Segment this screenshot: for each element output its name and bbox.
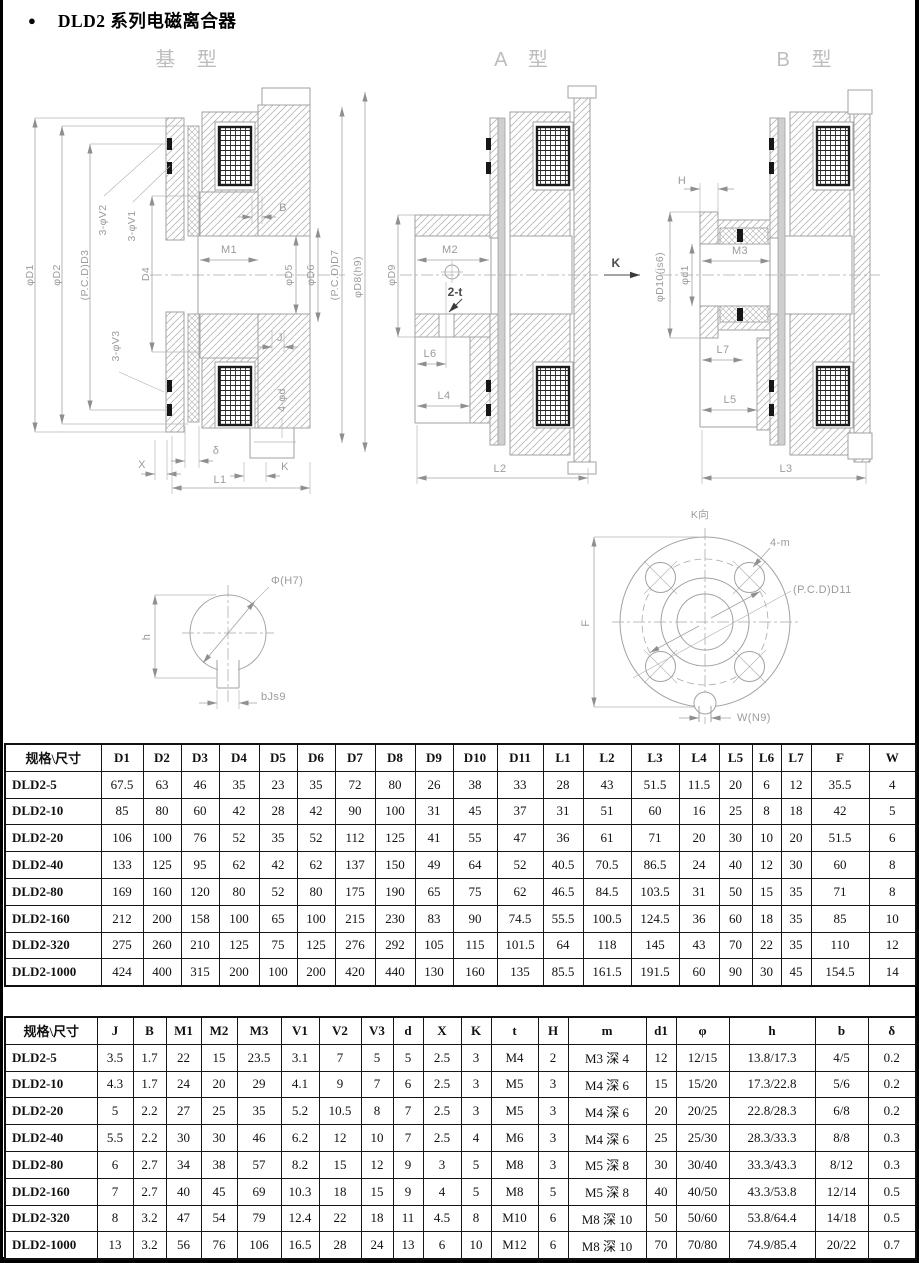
dim-label-bjs9: bJs9 — [261, 691, 286, 703]
spec-cell: DLD2-40 — [5, 852, 101, 879]
value-cell: 12 — [752, 852, 781, 879]
value-cell: 17.3/22.8 — [729, 1071, 815, 1098]
spec-cell: DLD2-80 — [5, 1151, 97, 1178]
value-cell: 2.7 — [133, 1151, 166, 1178]
value-cell: 100 — [375, 798, 415, 825]
value-cell: 47 — [166, 1205, 201, 1232]
value-cell: 3 — [423, 1151, 461, 1178]
value-cell: 35 — [781, 878, 811, 905]
value-cell: 1.7 — [133, 1044, 166, 1071]
table-row: DLD2-104.31.72420294.19762.53M53M4 深 615… — [5, 1071, 916, 1098]
value-cell: 125 — [143, 852, 181, 879]
value-cell: 62 — [497, 878, 543, 905]
value-cell: 106 — [237, 1232, 281, 1259]
spec-cell: DLD2-80 — [5, 878, 101, 905]
dim-label-3phiV2: 3-φV2 — [97, 205, 109, 236]
value-cell: 315 — [181, 959, 219, 986]
value-cell: 8 — [869, 878, 916, 905]
table-row: DLD2-53.51.7221523.53.17552.53M42M3 深 41… — [5, 1044, 916, 1071]
value-cell: 35 — [781, 905, 811, 932]
value-cell: 30 — [719, 825, 752, 852]
value-cell: 80 — [143, 798, 181, 825]
value-cell: 76 — [201, 1232, 237, 1259]
value-cell: 47 — [497, 825, 543, 852]
column-header: h — [729, 1017, 815, 1044]
value-cell: 105 — [415, 932, 453, 959]
value-cell: 50/60 — [676, 1205, 729, 1232]
value-cell: 5.2 — [281, 1098, 319, 1125]
value-cell: 70 — [719, 932, 752, 959]
value-cell: 103.5 — [631, 878, 679, 905]
coil-winding — [219, 127, 251, 185]
value-cell: 40 — [166, 1178, 201, 1205]
value-cell: 9 — [319, 1071, 361, 1098]
column-header: M2 — [201, 1017, 237, 1044]
value-cell: 60 — [679, 959, 719, 986]
value-cell: 60 — [811, 852, 869, 879]
coil-winding — [817, 127, 849, 185]
value-cell: 7 — [97, 1178, 133, 1205]
dimension-table-1: 规格\尺寸D1D2D3D4D5D6D7D8D9D10D11L1L2L3L4L5L… — [4, 743, 917, 987]
value-cell: 20 — [201, 1071, 237, 1098]
value-cell: 7 — [393, 1125, 423, 1152]
value-cell: 60 — [631, 798, 679, 825]
value-cell: 292 — [375, 932, 415, 959]
value-cell: 420 — [335, 959, 375, 986]
value-cell: 6 — [752, 771, 781, 798]
value-cell: 100.5 — [583, 905, 631, 932]
dim-label-phi-d5: φD5 — [283, 264, 295, 285]
value-cell: 112 — [335, 825, 375, 852]
value-cell: 54 — [201, 1205, 237, 1232]
value-cell: 61 — [583, 825, 631, 852]
value-cell: 75 — [453, 878, 497, 905]
value-cell: 4/5 — [815, 1044, 868, 1071]
value-cell: M12 — [491, 1232, 538, 1259]
value-cell: 4.1 — [281, 1071, 319, 1098]
value-cell: 0.5 — [868, 1178, 916, 1205]
drawing-title-b: B 型 — [777, 48, 840, 71]
dim-label-x: X — [138, 459, 146, 471]
value-cell: 125 — [297, 932, 335, 959]
value-cell: 50 — [719, 878, 752, 905]
value-cell: 5 — [393, 1044, 423, 1071]
value-cell: 215 — [335, 905, 375, 932]
column-header: M3 — [237, 1017, 281, 1044]
value-cell: 160 — [143, 878, 181, 905]
value-cell: M6 — [491, 1125, 538, 1152]
value-cell: 18 — [319, 1178, 361, 1205]
column-header: d — [393, 1017, 423, 1044]
value-cell: M5 深 8 — [568, 1151, 646, 1178]
value-cell: 31 — [679, 878, 719, 905]
value-cell: M8 深 10 — [568, 1205, 646, 1232]
column-header: V1 — [281, 1017, 319, 1044]
value-cell: 22 — [319, 1205, 361, 1232]
column-header: t — [491, 1017, 538, 1044]
keyway-detail-view: Φ(H7) h bJs9 — [141, 575, 303, 709]
column-header: V3 — [361, 1017, 393, 1044]
value-cell: 169 — [101, 878, 143, 905]
value-cell: 12 — [869, 932, 916, 959]
value-cell: 3.2 — [133, 1205, 166, 1232]
column-header: M1 — [166, 1017, 201, 1044]
dim-label-pcd-d7: (P.C.D)D7 — [329, 250, 341, 301]
value-cell: 8 — [97, 1205, 133, 1232]
dim-label-l3: L3 — [779, 463, 792, 475]
column-header: δ — [868, 1017, 916, 1044]
column-header: X — [423, 1017, 461, 1044]
table-row: DLD2-405.52.23030466.2121072.54M63M4 深 6… — [5, 1125, 916, 1152]
value-cell: 154.5 — [811, 959, 869, 986]
value-cell: 24 — [679, 852, 719, 879]
column-header: D11 — [497, 744, 543, 771]
column-header: V2 — [319, 1017, 361, 1044]
column-header: D6 — [297, 744, 335, 771]
value-cell: 115 — [453, 932, 497, 959]
value-cell: 62 — [297, 852, 335, 879]
dim-label-l7: L7 — [716, 344, 729, 356]
value-cell: 90 — [719, 959, 752, 986]
value-cell: 70/80 — [676, 1232, 729, 1259]
spec-cell: DLD2-320 — [5, 932, 101, 959]
value-cell: 12/14 — [815, 1178, 868, 1205]
value-cell: 31 — [415, 798, 453, 825]
value-cell: 30/40 — [676, 1151, 729, 1178]
value-cell: 12 — [361, 1151, 393, 1178]
coil-winding — [817, 367, 849, 425]
value-cell: 20/25 — [676, 1098, 729, 1125]
value-cell: 6 — [869, 825, 916, 852]
dim-label-phi-d1-small: φd1 — [679, 265, 691, 285]
value-cell: 30 — [646, 1151, 676, 1178]
value-cell: 100 — [143, 825, 181, 852]
column-header: L2 — [583, 744, 631, 771]
header-row: 规格\尺寸JBM1M2M3V1V2V3dXKtHmd1φhbδ — [5, 1017, 916, 1044]
value-cell: 137 — [335, 852, 375, 879]
value-cell: 14/18 — [815, 1205, 868, 1232]
value-cell: 36 — [543, 825, 583, 852]
value-cell: 124.5 — [631, 905, 679, 932]
value-cell: 26 — [415, 771, 453, 798]
value-cell: 52 — [219, 825, 259, 852]
value-cell: 71 — [811, 878, 869, 905]
column-header: 规格\尺寸 — [5, 744, 101, 771]
coil-winding — [219, 367, 251, 425]
value-cell: 43 — [679, 932, 719, 959]
value-cell: 424 — [101, 959, 143, 986]
value-cell: 10 — [752, 825, 781, 852]
drawing-title-base: 基 型 — [155, 48, 225, 71]
value-cell: 30 — [201, 1125, 237, 1152]
coil-winding — [537, 367, 569, 425]
value-cell: M8 — [491, 1178, 538, 1205]
value-cell: 20 — [646, 1098, 676, 1125]
table-row: DLD2-16021220015810065100215230839074.55… — [5, 905, 916, 932]
value-cell: 6 — [538, 1205, 568, 1232]
coil-winding — [537, 127, 569, 185]
value-cell: 86.5 — [631, 852, 679, 879]
value-cell: 38 — [453, 771, 497, 798]
value-cell: 2 — [538, 1044, 568, 1071]
table-row: DLD2-32083.247547912.42218114.58M106M8 深… — [5, 1205, 916, 1232]
value-cell: 10.3 — [281, 1178, 319, 1205]
value-cell: 42 — [219, 798, 259, 825]
value-cell: 5.5 — [97, 1125, 133, 1152]
value-cell: 35.5 — [811, 771, 869, 798]
value-cell: 37 — [497, 798, 543, 825]
value-cell: 2.5 — [423, 1125, 461, 1152]
value-cell: 42 — [811, 798, 869, 825]
value-cell: 158 — [181, 905, 219, 932]
bullet-icon: ● — [28, 13, 36, 29]
value-cell: 8 — [869, 852, 916, 879]
value-cell: 51.5 — [631, 771, 679, 798]
value-cell: 8.2 — [281, 1151, 319, 1178]
value-cell: 125 — [219, 932, 259, 959]
value-cell: 15 — [361, 1178, 393, 1205]
value-cell: 24 — [361, 1232, 393, 1259]
spec-cell: DLD2-1000 — [5, 959, 101, 986]
spec-cell: DLD2-10 — [5, 798, 101, 825]
dim-label-4phid: 4-φd — [276, 388, 288, 412]
value-cell: 3 — [538, 1125, 568, 1152]
value-cell: 95 — [181, 852, 219, 879]
value-cell: 64 — [453, 852, 497, 879]
value-cell: 45 — [453, 798, 497, 825]
value-cell: 200 — [219, 959, 259, 986]
dim-label-phi-d6: φD6 — [305, 264, 317, 285]
dim-label-phi-d8: φD8(h9) — [352, 256, 364, 298]
value-cell: 230 — [375, 905, 415, 932]
column-header: D2 — [143, 744, 181, 771]
column-header: b — [815, 1017, 868, 1044]
value-cell: 5 — [461, 1151, 491, 1178]
table-row: DLD2-10858060422842901003145373151601625… — [5, 798, 916, 825]
value-cell: 1.7 — [133, 1071, 166, 1098]
dim-label-pcd-d3: (P.C.D)D3 — [79, 250, 91, 301]
value-cell: 35 — [237, 1098, 281, 1125]
dim-label-d4: D4 — [140, 267, 152, 281]
value-cell: 190 — [375, 878, 415, 905]
dim-label-phi-d9: φD9 — [386, 264, 398, 285]
value-cell: 49 — [415, 852, 453, 879]
value-cell: 64 — [543, 932, 583, 959]
value-cell: 100 — [297, 905, 335, 932]
value-cell: 3.5 — [97, 1044, 133, 1071]
value-cell: 161.5 — [583, 959, 631, 986]
value-cell: 52 — [259, 878, 297, 905]
dim-label-m1: M1 — [221, 244, 237, 256]
keyway-notch — [694, 692, 716, 714]
value-cell: 150 — [375, 852, 415, 879]
value-cell: 20/22 — [815, 1232, 868, 1259]
value-cell: 25 — [646, 1125, 676, 1152]
value-cell: 41 — [415, 825, 453, 852]
value-cell: 56 — [166, 1232, 201, 1259]
value-cell: 20 — [781, 825, 811, 852]
column-header: D10 — [453, 744, 497, 771]
column-header: L1 — [543, 744, 583, 771]
value-cell: 10 — [869, 905, 916, 932]
value-cell: 5 — [361, 1044, 393, 1071]
value-cell: 45 — [201, 1178, 237, 1205]
value-cell: 46.5 — [543, 878, 583, 905]
dim-label-l6: L6 — [423, 348, 436, 360]
value-cell: 3 — [461, 1098, 491, 1125]
value-cell: 18 — [781, 798, 811, 825]
value-cell: 15 — [319, 1151, 361, 1178]
value-cell: 15 — [646, 1071, 676, 1098]
value-cell: 25 — [719, 798, 752, 825]
value-cell: 29 — [237, 1071, 281, 1098]
value-cell: 33 — [497, 771, 543, 798]
value-cell: M8 — [491, 1151, 538, 1178]
value-cell: 70 — [646, 1232, 676, 1259]
dim-label-phi-d1: φD1 — [24, 264, 36, 285]
value-cell: 10 — [361, 1125, 393, 1152]
value-cell: M4 深 6 — [568, 1125, 646, 1152]
value-cell: 11 — [393, 1205, 423, 1232]
value-cell: 12 — [781, 771, 811, 798]
value-cell: 74.9/85.4 — [729, 1232, 815, 1259]
value-cell: 12 — [319, 1125, 361, 1152]
value-cell: 13 — [97, 1232, 133, 1259]
value-cell: 80 — [219, 878, 259, 905]
column-header: W — [869, 744, 916, 771]
value-cell: 70.5 — [583, 852, 631, 879]
column-header: H — [538, 1017, 568, 1044]
value-cell: 14 — [869, 959, 916, 986]
column-header: L5 — [719, 744, 752, 771]
value-cell: 75 — [259, 932, 297, 959]
value-cell: 191.5 — [631, 959, 679, 986]
value-cell: 3.1 — [281, 1044, 319, 1071]
value-cell: 130 — [415, 959, 453, 986]
value-cell: 57 — [237, 1151, 281, 1178]
dim-label-2t: 2-t — [448, 285, 463, 299]
drawing-a-type: K φD9 M2 2-t L6 L4 L2 — [386, 86, 640, 484]
flange-k-view: K向 4-m (P.C.D)D11 F W( — [580, 508, 852, 724]
dim-label-f: F — [580, 619, 592, 626]
value-cell: 11.5 — [679, 771, 719, 798]
value-cell: 4 — [869, 771, 916, 798]
value-cell: 2.5 — [423, 1044, 461, 1071]
column-header: D8 — [375, 744, 415, 771]
value-cell: 2.5 — [423, 1098, 461, 1125]
value-cell: 52 — [497, 852, 543, 879]
dim-label-h: H — [678, 175, 686, 187]
dim-label-pcd-d11: (P.C.D)D11 — [793, 584, 852, 596]
value-cell: 0.2 — [868, 1044, 916, 1071]
value-cell: 160 — [453, 959, 497, 986]
drawing-b-type: H φD10(js6) φd1 M3 L7 L5 L3 — [654, 90, 880, 484]
value-cell: 12 — [646, 1044, 676, 1071]
header-row: 规格\尺寸D1D2D3D4D5D6D7D8D9D10D11L1L2L3L4L5L… — [5, 744, 916, 771]
spec-cell: DLD2-160 — [5, 905, 101, 932]
section-title-row: ● DLD2 系列电磁离合器 — [28, 8, 236, 33]
value-cell: 46 — [237, 1125, 281, 1152]
spec-cell: DLD2-160 — [5, 1178, 97, 1205]
value-cell: 23 — [259, 771, 297, 798]
value-cell: 5 — [97, 1098, 133, 1125]
value-cell: 0.5 — [868, 1205, 916, 1232]
value-cell: 18 — [361, 1205, 393, 1232]
value-cell: 8/8 — [815, 1125, 868, 1152]
page-title: DLD2 系列电磁离合器 — [58, 8, 237, 33]
column-header: D1 — [101, 744, 143, 771]
value-cell: 12/15 — [676, 1044, 729, 1071]
value-cell: 5 — [869, 798, 916, 825]
value-cell: 13.8/17.3 — [729, 1044, 815, 1071]
value-cell: 85 — [101, 798, 143, 825]
value-cell: 27 — [166, 1098, 201, 1125]
dim-label-phi-h7: Φ(H7) — [271, 575, 303, 587]
value-cell: 2.5 — [423, 1071, 461, 1098]
value-cell: 74.5 — [497, 905, 543, 932]
column-header: F — [811, 744, 869, 771]
value-cell: 200 — [143, 905, 181, 932]
value-cell: 16.5 — [281, 1232, 319, 1259]
table-row: DLD2-10004244003152001002004204401301601… — [5, 959, 916, 986]
table-row: DLD2-32027526021012575125276292105115101… — [5, 932, 916, 959]
dim-label-k-view: K — [611, 256, 620, 270]
table-row: DLD2-16072.740456910.31815945M85M5 深 840… — [5, 1178, 916, 1205]
catalog-page: ● DLD2 系列电磁离合器 基 型 A — [0, 0, 919, 1263]
value-cell: 10.5 — [319, 1098, 361, 1125]
column-header: 规格\尺寸 — [5, 1017, 97, 1044]
value-cell: 3 — [538, 1151, 568, 1178]
spec-cell: DLD2-5 — [5, 1044, 97, 1071]
value-cell: 275 — [101, 932, 143, 959]
value-cell: 22 — [752, 932, 781, 959]
value-cell: 8 — [752, 798, 781, 825]
column-header: D3 — [181, 744, 219, 771]
value-cell: 0.3 — [868, 1151, 916, 1178]
value-cell: 52 — [297, 825, 335, 852]
value-cell: 50 — [646, 1205, 676, 1232]
value-cell: 23.5 — [237, 1044, 281, 1071]
table-row: DLD2-567.563463523357280263833284351.511… — [5, 771, 916, 798]
value-cell: 2.2 — [133, 1125, 166, 1152]
table-row: DLD2-401331259562426213715049645240.570.… — [5, 852, 916, 879]
value-cell: 55 — [453, 825, 497, 852]
value-cell: 3 — [538, 1071, 568, 1098]
dim-label-j: J — [277, 332, 283, 344]
value-cell: 2.7 — [133, 1178, 166, 1205]
value-cell: 13 — [393, 1232, 423, 1259]
value-cell: 35 — [781, 932, 811, 959]
column-header: B — [133, 1017, 166, 1044]
value-cell: 3 — [461, 1071, 491, 1098]
value-cell: 9 — [393, 1151, 423, 1178]
value-cell: 100 — [259, 959, 297, 986]
column-header: D5 — [259, 744, 297, 771]
value-cell: M4 — [491, 1044, 538, 1071]
value-cell: 30 — [752, 959, 781, 986]
value-cell: 5 — [538, 1178, 568, 1205]
value-cell: 67.5 — [101, 771, 143, 798]
spec-cell: DLD2-20 — [5, 1098, 97, 1125]
table-row: DLD2-20106100765235521121254155473661712… — [5, 825, 916, 852]
column-header: J — [97, 1017, 133, 1044]
value-cell: 5 — [461, 1178, 491, 1205]
value-cell: 43.3/53.8 — [729, 1178, 815, 1205]
value-cell: 145 — [631, 932, 679, 959]
value-cell: 440 — [375, 959, 415, 986]
dim-label-l2: L2 — [493, 463, 506, 475]
value-cell: 12.4 — [281, 1205, 319, 1232]
